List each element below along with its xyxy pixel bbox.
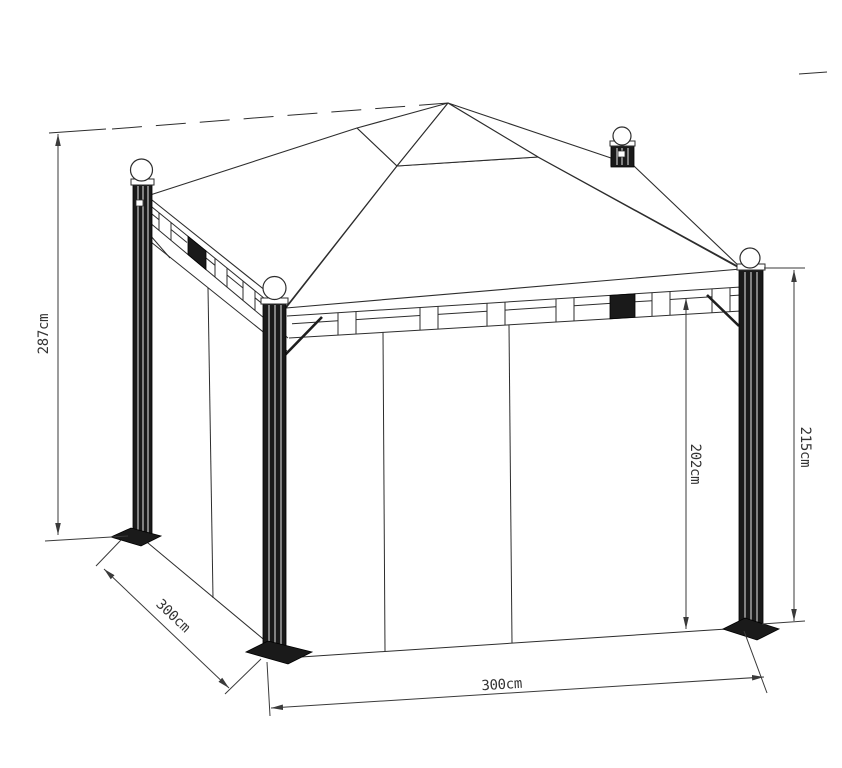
roof-canopy (147, 103, 741, 308)
finial-ball-front-left (263, 277, 286, 300)
post-back-left (111, 159, 161, 546)
finial-ball-back-right (613, 127, 631, 145)
base-plate-front-right (723, 618, 779, 640)
finial-ball-back-left (131, 159, 153, 181)
drawing-canvas: 287cm 300cm 300cm 202cm 215cm (0, 0, 842, 768)
dimension-post-height: 215cm (762, 268, 813, 624)
bracket-detail (618, 151, 625, 157)
valance-dark-block-front (610, 294, 635, 319)
base-plate-front-left (246, 641, 312, 664)
dimension-label-post-height: 215cm (797, 427, 813, 468)
dimension-label-total-height: 287cm (36, 314, 52, 355)
dimension-label-front-width: 300cm (481, 676, 523, 695)
post-front-left (246, 277, 312, 665)
post-back-right (610, 127, 635, 167)
finial-ball-front-right (740, 248, 760, 268)
post-front-right (723, 248, 779, 640)
dimension-height-total: 287cm (36, 134, 128, 541)
curtain-front (286, 325, 742, 658)
curtain-front-seam-2 (509, 325, 512, 643)
dimension-clearance-height: 202cm (686, 298, 703, 629)
gazebo-dimension-drawing: 287cm 300cm 300cm 202cm 215cm (0, 0, 842, 768)
curtain-left-seam (208, 288, 213, 598)
bracket-detail (136, 200, 143, 206)
curtain-left-fold (150, 235, 170, 258)
dimension-label-side-depth: 300cm (153, 596, 194, 636)
dimension-label-clearance: 202cm (687, 444, 703, 485)
dimension-front-width: 300cm (267, 631, 767, 716)
curtain-front-seam-1 (383, 332, 385, 651)
